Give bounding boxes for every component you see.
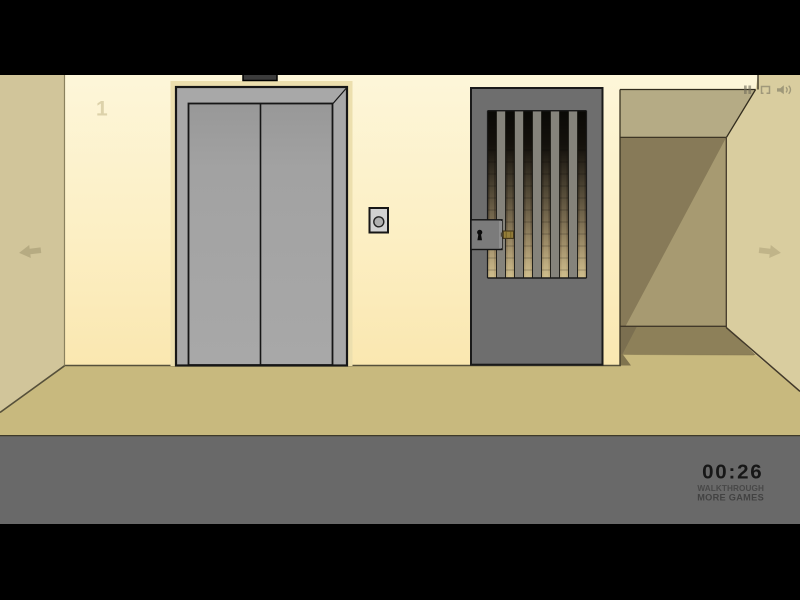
svg-text:MORE GAMES: MORE GAMES (697, 493, 764, 503)
svg-text:WALKTHROUGH: WALKTHROUGH (697, 484, 764, 493)
svg-text:00:26: 00:26 (702, 461, 763, 484)
svg-text:1: 1 (96, 98, 108, 121)
